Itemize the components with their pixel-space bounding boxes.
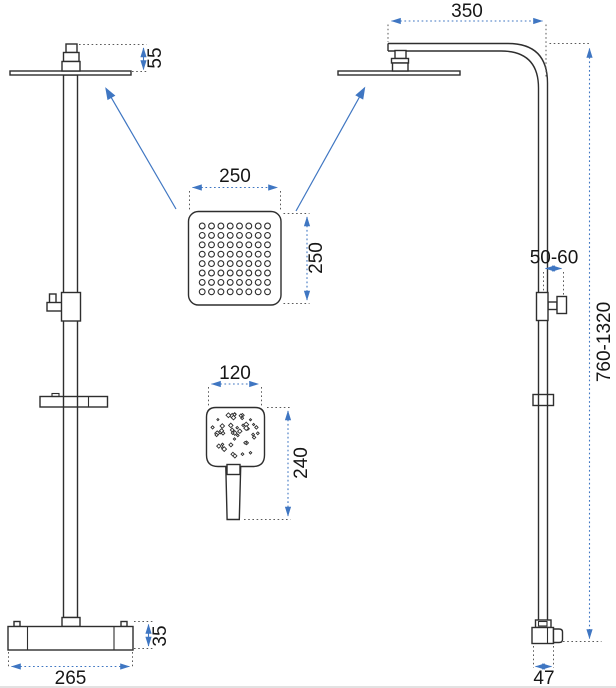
slider-holder-block [537, 293, 549, 321]
arrow-icon [296, 88, 365, 211]
left-column-view [8, 44, 133, 650]
shower-arm-inner [388, 51, 539, 620]
dim-label-240: 240 [291, 447, 312, 479]
dim-label-47: 47 [533, 668, 554, 688]
water-outlet [554, 629, 563, 643]
dimension-annotations: 55 35 265 250 250 120 240 [9, 1, 616, 688]
diverter-lever-arm [47, 303, 63, 312]
bottom-elbow [532, 628, 554, 644]
shower-set-technical-drawing: 55 35 265 250 250 120 240 [0, 0, 616, 688]
dim-label-265: 265 [55, 668, 87, 688]
head-connector-base [62, 62, 80, 72]
dim-label-250w: 250 [219, 166, 251, 187]
slider-knob-stem [548, 302, 557, 310]
spray-nozzle-grid [199, 223, 270, 295]
pointer-arrows [106, 88, 365, 211]
hand-shower-button [227, 465, 240, 475]
diverter-block [62, 293, 81, 322]
rail-bracket [533, 395, 554, 406]
arrow-icon [106, 89, 176, 210]
dim-label-50-60: 50-60 [530, 248, 579, 269]
dim-label-350: 350 [451, 1, 483, 22]
shower-pipe [64, 75, 78, 618]
dim-label-250h: 250 [306, 242, 327, 274]
overhead-shower-detail [189, 212, 282, 306]
shower-arm-outer [388, 44, 548, 621]
dim-label-55: 55 [145, 47, 166, 68]
head-connector-top [395, 51, 406, 59]
mixer-tab-left [14, 622, 20, 627]
head-connector-mid [64, 53, 80, 62]
hand-shower-detail [207, 408, 265, 520]
dim-label-120: 120 [219, 363, 251, 384]
drawing-page: 55 35 265 250 250 120 240 [0, 0, 616, 688]
dim-label-760-1320: 760-1320 [594, 302, 615, 382]
head-connector-base [393, 63, 409, 71]
head-connector-top [66, 44, 77, 53]
dim-label-35: 35 [150, 625, 171, 646]
mixer-tab-right [121, 622, 127, 627]
slider-knob-head [557, 297, 567, 314]
right-column-view [338, 44, 567, 644]
mixer-connector [62, 618, 80, 627]
